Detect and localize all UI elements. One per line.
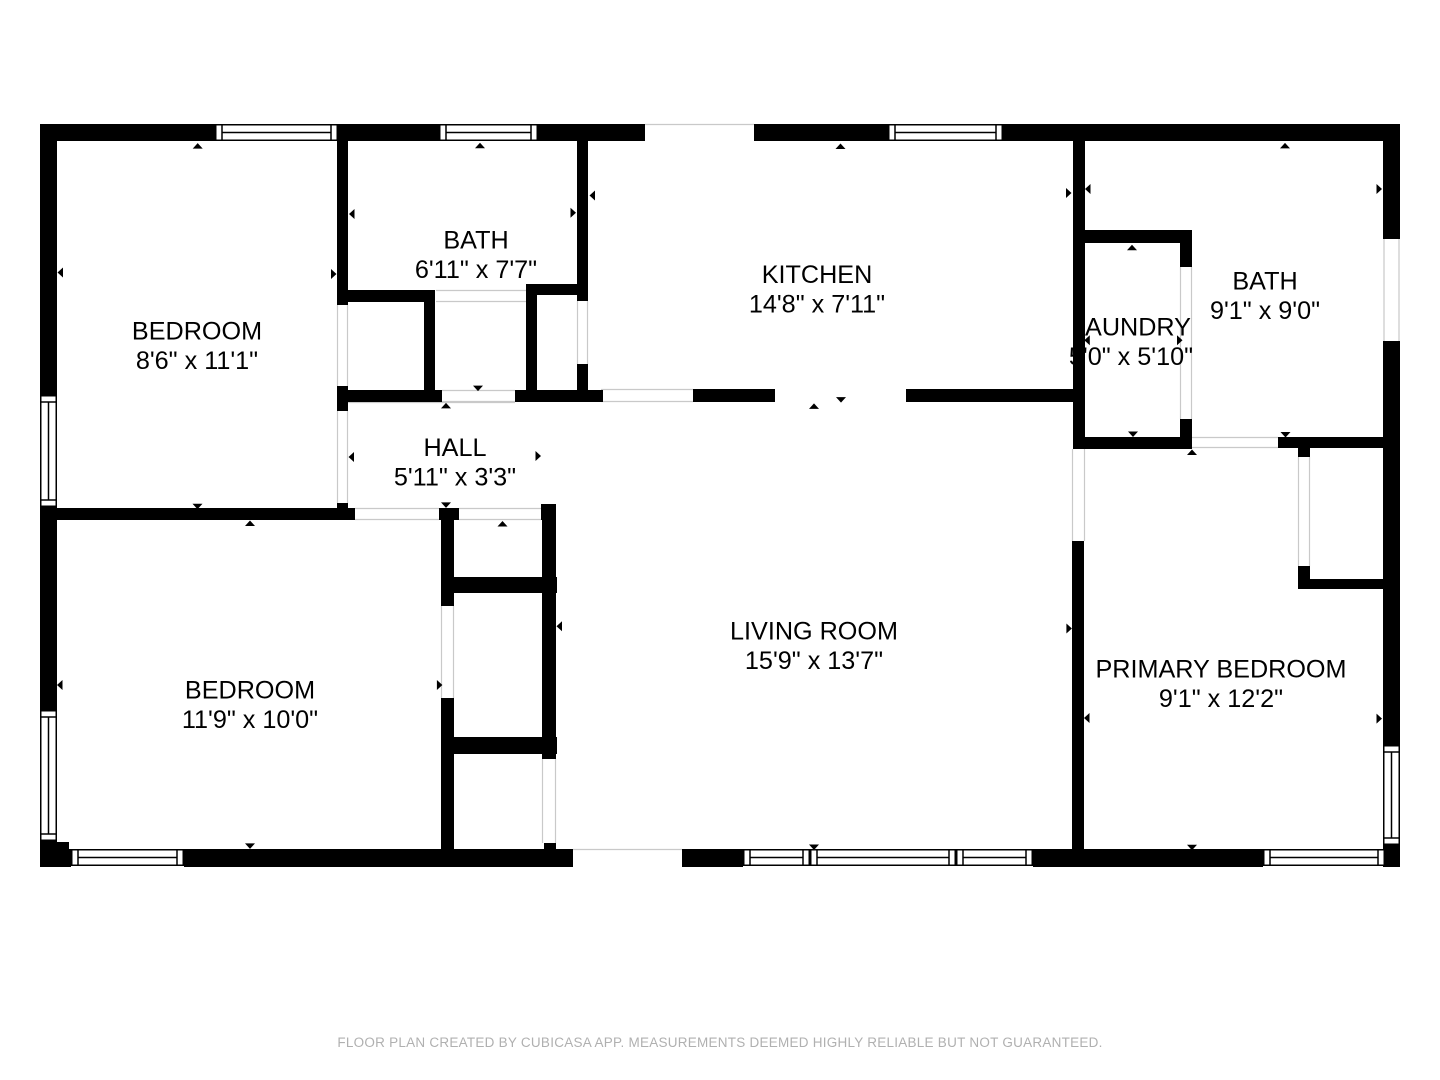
svg-text:9'1" x 9'0": 9'1" x 9'0": [1210, 297, 1320, 325]
svg-text:BEDROOM: BEDROOM: [185, 677, 315, 705]
svg-text:FLOOR PLAN CREATED BY CUBICASA: FLOOR PLAN CREATED BY CUBICASA APP. MEAS…: [337, 1035, 1102, 1050]
svg-text:8'6" x 11'1": 8'6" x 11'1": [136, 347, 258, 375]
svg-text:BATH: BATH: [443, 227, 508, 255]
svg-text:LIVING ROOM: LIVING ROOM: [730, 618, 898, 646]
svg-text:BATH: BATH: [1232, 268, 1297, 296]
svg-text:6'11" x 7'7": 6'11" x 7'7": [415, 256, 537, 284]
svg-text:HALL: HALL: [423, 434, 486, 462]
svg-text:5'0" x 5'10": 5'0" x 5'10": [1069, 343, 1193, 371]
svg-text:PRIMARY BEDROOM: PRIMARY BEDROOM: [1096, 656, 1347, 684]
svg-text:KITCHEN: KITCHEN: [762, 261, 873, 289]
svg-text:9'1" x 12'2": 9'1" x 12'2": [1159, 685, 1283, 713]
svg-text:11'9" x 10'0": 11'9" x 10'0": [182, 706, 318, 734]
svg-text:5'11" x 3'3": 5'11" x 3'3": [394, 464, 516, 492]
svg-text:15'9" x 13'7": 15'9" x 13'7": [745, 647, 883, 675]
svg-text:14'8" x 7'11": 14'8" x 7'11": [749, 291, 885, 319]
svg-text:BEDROOM: BEDROOM: [132, 318, 262, 346]
